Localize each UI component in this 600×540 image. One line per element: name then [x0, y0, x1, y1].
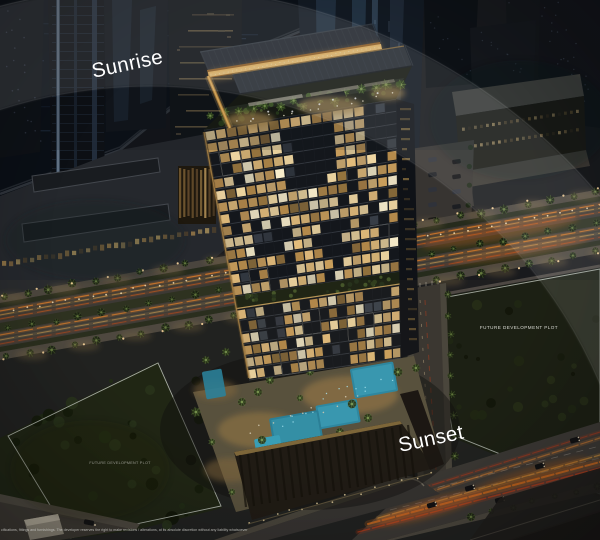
svg-text:cifications, fittings and furn: cifications, fittings and furnishings. T… [1, 528, 248, 532]
